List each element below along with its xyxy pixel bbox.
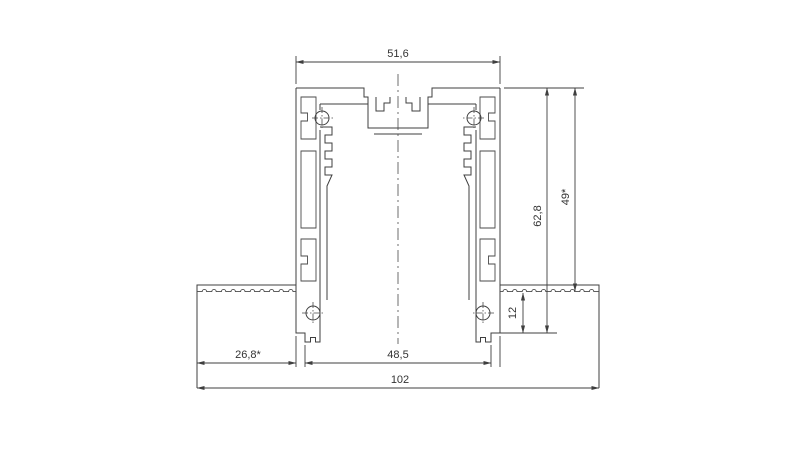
dim-inner-height-label: 49* [560, 188, 572, 205]
recess-hook-tab [376, 97, 390, 111]
extension-lines [296, 56, 305, 367]
dim-overall-height-label: 62,8 [532, 205, 544, 226]
inner-rib-teeth [320, 104, 332, 300]
wall-pocket-middle [301, 151, 316, 228]
wall-pocket-lower [301, 239, 316, 281]
top-surface-and-recess [296, 88, 398, 128]
drawing-page: 51,6 62,8 49* 12 26,8* 48,5 102 [0, 0, 800, 450]
dim-flange-thickness-label: 12 [507, 307, 519, 319]
wing-flange [197, 285, 296, 388]
wing-serration [197, 289, 296, 291]
screw-port-top-centermarks [312, 107, 334, 129]
dim-wing-width-label: 26,8* [235, 349, 261, 361]
profile-left-half [197, 56, 398, 388]
profile-right-half-mirror [398, 56, 599, 388]
dim-top-width-label: 51,6 [387, 48, 408, 60]
dim-bottom-body-width-label: 48,5 [387, 349, 408, 361]
technical-drawing-canvas: 51,6 62,8 49* 12 26,8* 48,5 102 [0, 0, 800, 450]
screw-port-bottom-centermarks [302, 302, 324, 324]
dim-total-width-label: 102 [391, 374, 409, 386]
